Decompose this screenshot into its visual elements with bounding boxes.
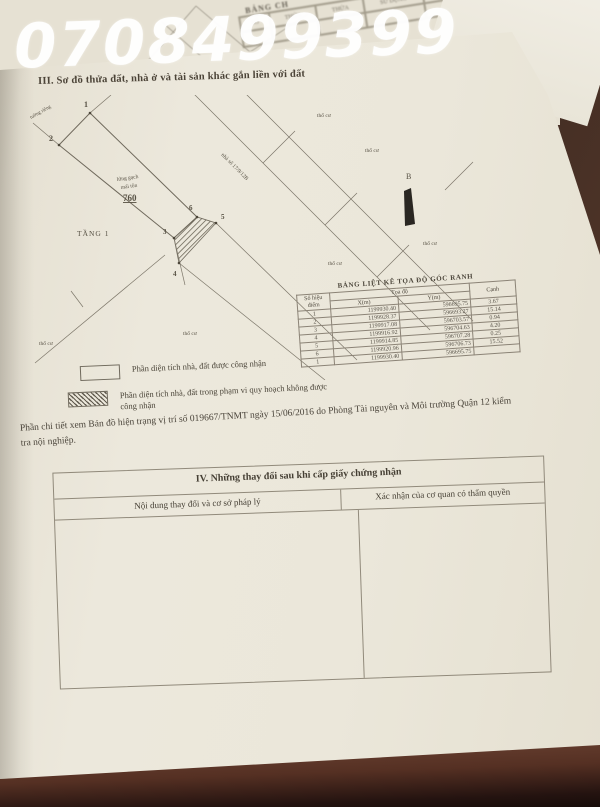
point-label-4: 4 [173,270,177,278]
north-arrow: B [404,172,415,226]
coordinate-cell [474,344,520,355]
land-label: thổ cư [423,240,438,247]
empty-cell-content [55,510,365,689]
house-number-label: nhà số 17/9/12B [220,151,251,182]
land-label: thổ cư [328,260,343,267]
land-label: thổ cư [317,112,332,119]
land-label: thổ cư [365,147,380,154]
certificate-page: III. Sơ đồ thửa đất, nhà ở và tài sản kh… [0,0,600,807]
legend-swatch-recognized [80,364,121,381]
point-label-1: 1 [84,100,88,109]
coordinate-table: BẢNG LIỆT KÊ TỌA ĐỘ GÓC RANH Số hiệu điể… [295,269,520,367]
point-label-6: 6 [189,204,193,212]
coordinate-cell: 1 [301,357,334,367]
land-label: thổ cư [183,330,198,337]
parcel-number: 760 [123,193,137,203]
north-label: B [406,172,411,181]
floor-label: TẦNG 1 [77,228,109,238]
point-label-5: 5 [221,213,225,221]
section-4-table: IV. Những thay đổi sau khi cấp giấy chứn… [52,455,551,689]
empty-cell-confirm [359,503,551,677]
legend-swatch-planning [68,391,109,408]
attic-label: lửng gạch [116,174,139,183]
land-label: thổ cư [39,340,54,347]
point-label-2: 2 [49,134,53,143]
parcel-outline [33,95,197,238]
wall-label: tường riêng [30,105,53,121]
section-4-empty-body [55,503,551,688]
roof-label: mái tôn [120,183,138,191]
hatched-planning-strip [174,217,216,263]
photo-of-land-certificate: BẢNG CH SỐ THỬA THỬA SỬ DỤNG CẤP IV DIỆN… [0,0,600,807]
point-label-3: 3 [163,228,167,236]
